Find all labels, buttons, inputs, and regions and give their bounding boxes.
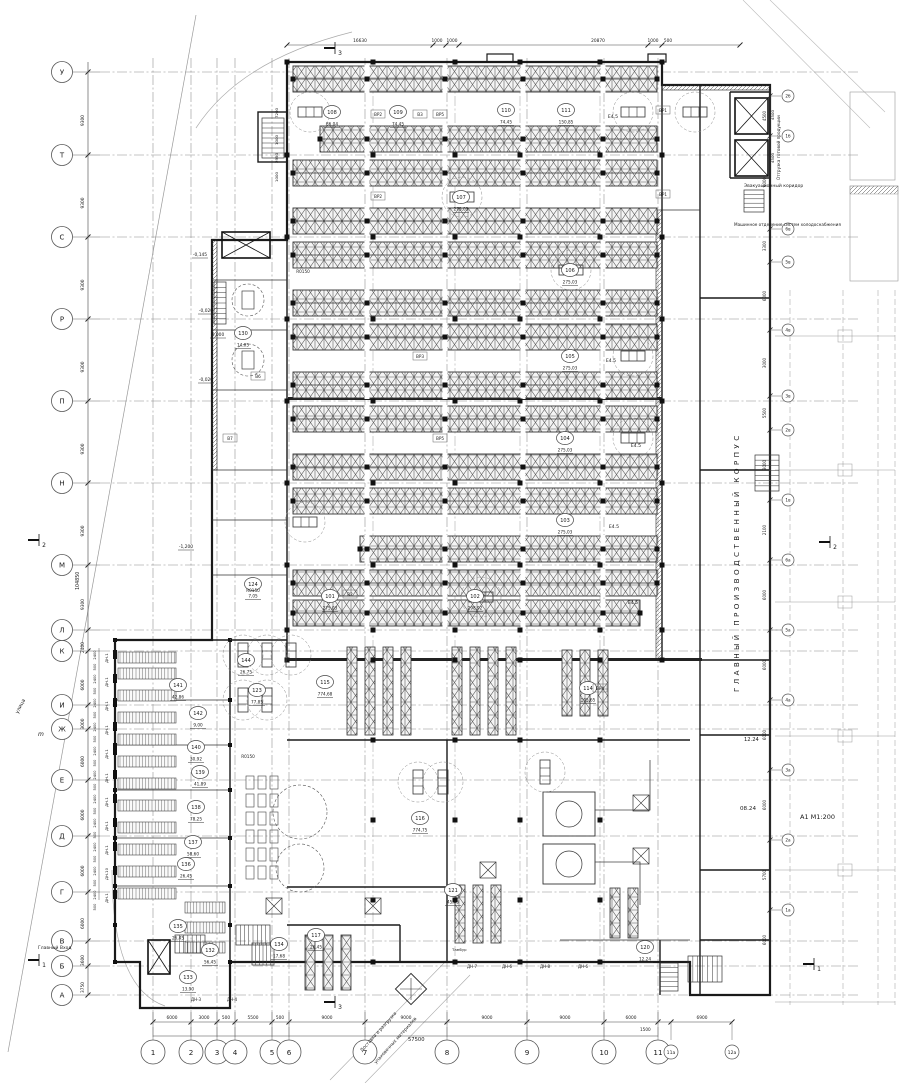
column-marker [598, 60, 603, 65]
dim-value: 5500 [248, 1015, 259, 1021]
grid-row-label: У [60, 69, 65, 77]
dock-label: ДН-10 [104, 867, 109, 880]
dock-label: ДН-1 [104, 677, 109, 687]
dim-value: 6000 [626, 1015, 637, 1021]
room-number: 108 [327, 110, 337, 116]
column-marker [521, 219, 526, 224]
column-marker [601, 137, 606, 142]
column-marker [365, 301, 370, 306]
dim-value: 2400 [93, 842, 97, 852]
room-area: 275,03 [558, 530, 573, 535]
column-marker [365, 581, 370, 586]
shelf-row [118, 712, 176, 723]
column-marker [638, 611, 643, 616]
plan-line [271, 635, 311, 675]
room-number: 144 [241, 658, 251, 664]
column-marker [453, 60, 458, 65]
room-number: 123 [252, 688, 262, 694]
room-area: 7,05 [248, 594, 258, 599]
column-marker [228, 788, 232, 792]
shelf-row [118, 652, 176, 663]
column-marker [518, 658, 523, 663]
column-marker [601, 77, 606, 82]
process-tank [543, 844, 595, 884]
column-marker [371, 153, 376, 158]
dock-label: ДН-1 [104, 893, 109, 903]
room-area: 78,25 [190, 817, 202, 822]
dim-value: 500 [93, 903, 97, 911]
column-marker [113, 836, 117, 840]
column-marker [228, 743, 232, 747]
grid-row-label: М [59, 562, 65, 570]
dock-door [113, 866, 117, 875]
load-class-mark: Е4.5 [631, 443, 641, 449]
dim-value: 9300 [80, 599, 86, 610]
grid-col-label: 10 [599, 1048, 609, 1057]
room-area: 26,45 [172, 936, 184, 941]
dim-value: 6000 [167, 1015, 178, 1021]
room-area: 12,24 [639, 957, 651, 962]
column-marker [365, 611, 370, 616]
dock-door [113, 890, 117, 899]
load-class-mark: Е4.5 [609, 524, 619, 530]
main-entrance-label: Главный Вход [38, 944, 72, 951]
dim-value: 500 [93, 807, 97, 815]
column-marker [365, 465, 370, 470]
column-marker [371, 60, 376, 65]
grid-col-label: 2 [189, 1048, 194, 1057]
dim-value: 2400 [93, 770, 97, 780]
column-marker [371, 628, 376, 633]
column-marker [598, 317, 603, 322]
column-marker [521, 383, 526, 388]
grid-row-label: И [59, 702, 64, 710]
misc-labels: ВР2В3ВР5ВР1ВР1ВР2ВР3ВР5В2ВР4В6В7Е4.5Е4.5… [28, 42, 837, 1011]
room-area: 774,68 [318, 692, 333, 697]
column-marker [598, 898, 603, 903]
sub-width-dim: 1500 [640, 1027, 651, 1032]
column-marker [521, 417, 526, 422]
rack-column [323, 935, 333, 990]
main-building-title: ГЛАВНЫЙ ПРОИЗВОДСТВЕННЫЙ КОРПУС [732, 432, 741, 692]
rack-code: ВР2 [374, 194, 382, 199]
rack-column [506, 647, 516, 735]
column-marker [655, 301, 660, 306]
column-marker [521, 77, 526, 82]
stair-flight [688, 956, 722, 982]
column-marker [598, 399, 603, 404]
dim-value: 2400 [80, 642, 86, 653]
dock-door [113, 698, 117, 707]
date-note-top: 12.24 [744, 737, 760, 743]
dim-value: 2400 [93, 698, 97, 708]
stair-flight [744, 190, 764, 212]
pump-unit [270, 848, 278, 861]
column-marker [443, 611, 448, 616]
column-marker [443, 301, 448, 306]
column-marker [598, 658, 603, 663]
dim-value: 500 [93, 687, 97, 695]
column-marker [443, 335, 448, 340]
forklift-icon [247, 635, 287, 675]
column-marker [598, 960, 603, 965]
dim-value: 9000 [482, 1015, 493, 1021]
plan-line [621, 107, 645, 117]
dock-door [113, 770, 117, 779]
date-note-mid: 08.24 [740, 806, 756, 812]
shelf-row [185, 922, 225, 933]
column-marker [655, 547, 660, 552]
dock-label: ДН-4 [227, 997, 238, 1002]
column-marker [655, 465, 660, 470]
column-marker [443, 77, 448, 82]
column-marker [521, 499, 526, 504]
dock-label: ДН-1 [104, 653, 109, 663]
dim-value: 1000 [648, 38, 659, 44]
room-area: 9,00 [193, 723, 203, 728]
room-area: 105,65 [581, 698, 596, 703]
room-number: 103 [560, 518, 570, 524]
tambour-label: Тамбур [451, 947, 467, 952]
dim-value: 4500 [770, 110, 775, 120]
hoist-unit [242, 351, 254, 369]
grid-row-label: В [60, 938, 65, 946]
column-marker [601, 499, 606, 504]
street-label: улица [14, 698, 27, 715]
pump-unit [246, 776, 254, 789]
dim-value: 1000 [274, 172, 279, 182]
shipping-label: Отгрузка готовой продукции [776, 115, 781, 180]
room-number: 133 [183, 975, 193, 981]
grid-row-label: Л [59, 627, 64, 635]
grid-row-label: 6а [785, 558, 791, 563]
pump-unit [246, 812, 254, 825]
dim-value: 20870 [591, 38, 605, 44]
plan-line [298, 107, 322, 117]
column-marker [655, 499, 660, 504]
plan-line [633, 848, 649, 864]
section-number: 3 [338, 50, 342, 57]
column-marker [660, 563, 665, 568]
column-marker [318, 137, 323, 142]
column-marker [443, 137, 448, 142]
grid-row-label: 3а [785, 768, 791, 773]
dim-value: 7200 [274, 108, 279, 118]
column-marker [601, 611, 606, 616]
dim-value: 500 [93, 759, 97, 767]
column-marker [601, 171, 606, 176]
column-marker [285, 628, 290, 633]
dim-value: 9000 [560, 1015, 571, 1021]
plan-line [238, 688, 248, 712]
column-marker [365, 253, 370, 258]
dim-value: 6000 [80, 865, 86, 876]
pump-unit [258, 830, 266, 843]
dim-value: 3750 [80, 982, 86, 993]
column-marker [655, 253, 660, 258]
room-area: 26,45 [180, 874, 192, 879]
room-area: 42,86 [172, 695, 184, 700]
pipe-run [595, 760, 650, 905]
rack-code: В2 [347, 592, 353, 597]
room-area: 150,85 [559, 120, 574, 125]
column-marker [291, 499, 296, 504]
room-number: 109 [393, 110, 403, 116]
load-class-mark: Е4.5 [606, 358, 616, 364]
format-scale-note: А1 М1:200 [800, 813, 835, 821]
column-marker [660, 60, 665, 65]
dock-door [113, 842, 117, 851]
room-number: 105 [565, 354, 575, 360]
shelf-row [185, 902, 225, 913]
plan-line [735, 140, 768, 176]
shelf-row [118, 822, 176, 833]
column-marker [598, 235, 603, 240]
grid-row-label: 3в [785, 394, 791, 399]
column-marker [660, 628, 665, 633]
adjacent-structure [850, 186, 898, 281]
column-marker [371, 818, 376, 823]
column-marker [291, 77, 296, 82]
dim-value: 2400 [93, 722, 97, 732]
column-marker [598, 738, 603, 743]
dock-label: ДН-1 [104, 725, 109, 735]
dock-label: ДН-1 [104, 749, 109, 759]
shelf-row [118, 690, 176, 701]
column-marker [365, 335, 370, 340]
room-area: 26,45 [310, 945, 322, 950]
room-number: 106 [565, 268, 575, 274]
pump-unit [246, 848, 254, 861]
room-number: 111 [561, 108, 571, 114]
grid-col-label: 6 [287, 1048, 292, 1057]
grid-row-label: Ж [58, 726, 66, 734]
column-marker [660, 399, 665, 404]
grid-row-label: Н [59, 480, 64, 488]
column-marker [228, 836, 232, 840]
dock-door [113, 674, 117, 683]
process-tank [543, 792, 595, 836]
grid-row-label: С [60, 234, 65, 242]
column-marker [518, 898, 523, 903]
room-number: 141 [173, 683, 183, 689]
dim-value: 2400 [93, 674, 97, 684]
dock-label: ДН-1 [104, 845, 109, 855]
grid-row-label: Д [59, 833, 65, 841]
section-number: 3 [338, 1004, 342, 1011]
column-marker [285, 481, 290, 486]
dim-value: 1000 [274, 135, 279, 145]
dim-value: 2950 [274, 153, 279, 163]
tank-circle [276, 844, 324, 892]
pump-unit [258, 848, 266, 861]
wall-notch [487, 54, 513, 62]
dim-value: 500 [93, 783, 97, 791]
tank-circle [556, 801, 582, 827]
column-marker [365, 499, 370, 504]
column-marker [228, 884, 232, 888]
column-marker [655, 137, 660, 142]
column-marker [291, 301, 296, 306]
dim-value: 9300 [80, 361, 86, 372]
rack-code: ВР5 [436, 112, 444, 117]
room-area: 275,03 [454, 207, 469, 212]
column-marker [601, 335, 606, 340]
dim-value: 3000 [762, 357, 767, 368]
room-area: 298,92 [468, 606, 483, 611]
column-marker [285, 399, 290, 404]
dock-label: ДН-6 [502, 964, 513, 969]
dim-value: 6000 [80, 756, 86, 767]
rack-code: ВР1 [659, 108, 667, 113]
adjacent-structure [850, 92, 895, 180]
plan-line [755, 455, 779, 491]
dim-value: 3600 [80, 955, 86, 966]
plan-line [621, 433, 645, 443]
plan-line [413, 770, 423, 794]
total-width-dim: 57500 [408, 1037, 425, 1043]
room-number: 137 [188, 840, 198, 846]
dim-value: 9300 [80, 279, 86, 290]
shelf-row [118, 800, 176, 811]
dim-value: 500 [93, 831, 97, 839]
column-marker [371, 960, 376, 965]
hatched-wall [212, 240, 217, 470]
column-marker [365, 171, 370, 176]
rack-code: ВР1 [659, 192, 667, 197]
room-number: 142 [193, 711, 203, 717]
shelf-row [118, 778, 176, 789]
room-area: 56,45 [204, 960, 216, 965]
plan-line [540, 760, 550, 784]
forklift-icon [423, 762, 463, 802]
column-marker [655, 581, 660, 586]
room-number: 102 [470, 594, 480, 600]
grid-row-label: Г [60, 889, 64, 897]
column-marker [598, 153, 603, 158]
column-marker [365, 417, 370, 422]
column-marker [371, 563, 376, 568]
column-marker [518, 738, 523, 743]
hatched-wall [662, 85, 770, 90]
dock-label: ДН-6 [578, 964, 589, 969]
section-marker: 3 [324, 996, 342, 1011]
column-marker [443, 253, 448, 258]
column-marker [453, 628, 458, 633]
dim-value: 6000 [762, 799, 767, 810]
grid-row-label: 4а [785, 698, 791, 703]
pump-unit [270, 866, 278, 879]
grid-row-label: 1б [785, 134, 791, 139]
room-number: 120 [640, 945, 650, 951]
plan-line [398, 762, 438, 802]
tank-circle [556, 851, 582, 877]
dim-value: 3000 [199, 1015, 210, 1021]
room-area: 774,75 [413, 828, 428, 833]
grid-row-label: 6в [785, 227, 791, 232]
column-marker [601, 581, 606, 586]
column-marker [371, 738, 376, 743]
room-area: 77,85 [251, 700, 263, 705]
column-marker [518, 60, 523, 65]
radius-mark: R0150 [246, 588, 260, 593]
room-area: 275,03 [558, 448, 573, 453]
section-number: 2 [833, 544, 837, 551]
column-marker [371, 317, 376, 322]
tank-circle [232, 284, 264, 316]
column-marker [521, 171, 526, 176]
dim-value: 500 [664, 38, 672, 44]
dim-value: 6000 [80, 809, 86, 820]
dock-label: ДН-1 [104, 773, 109, 783]
column-marker [521, 253, 526, 258]
column-marker [598, 628, 603, 633]
dim-value: 6000 [762, 934, 767, 945]
room-area: 275,03 [563, 366, 578, 371]
room-number: 115 [320, 680, 330, 686]
grid-col-label: 11 [653, 1048, 662, 1057]
dock-door [113, 650, 117, 659]
dim-value: 6000 [80, 918, 86, 929]
room-number: 134 [274, 942, 284, 948]
column-marker [453, 738, 458, 743]
grid-row-label: Т [59, 152, 65, 160]
floor-plan-sheet: У9300Т9300С9300Р9300П9300Н9300М9300Л2400… [0, 0, 900, 1083]
dim-value: 2400 [93, 890, 97, 900]
rack-code: ВР5 [436, 436, 444, 441]
dock-label: ДН-3 [191, 997, 202, 1002]
plan-line [683, 107, 707, 117]
total-height-dim: 104850 [75, 572, 81, 590]
rack-column [491, 885, 501, 943]
stair-flight [755, 455, 779, 491]
column-marker [371, 481, 376, 486]
column-marker [291, 335, 296, 340]
dim-value: 6000 [762, 589, 767, 600]
column-marker [660, 235, 665, 240]
column-marker [518, 628, 523, 633]
column-marker [601, 383, 606, 388]
room-number: 114 [583, 686, 593, 692]
floor-plan-drawing: У9300Т9300С9300Р9300П9300Н9300М9300Л2400… [0, 0, 900, 1083]
column-marker [660, 317, 665, 322]
rack-code: ВР2 [374, 112, 382, 117]
grid-row-label: Р [60, 316, 64, 324]
room-area: 58,60 [187, 852, 199, 857]
section-number: 1 [42, 962, 46, 969]
dock-door [113, 746, 117, 755]
column-marker [655, 383, 660, 388]
column-marker [285, 563, 290, 568]
column-marker [601, 547, 606, 552]
room-number: 104 [560, 436, 570, 442]
shelf-row [118, 888, 176, 899]
column-marker [443, 547, 448, 552]
column-marker [453, 317, 458, 322]
grid-row-label: 2в [785, 428, 791, 433]
column-marker [518, 563, 523, 568]
column-marker [365, 219, 370, 224]
grid-row-label: 2б [785, 94, 791, 99]
pump-unit [258, 776, 266, 789]
grid-col-label: 9 [525, 1048, 530, 1057]
dock-door [113, 794, 117, 803]
column-marker [518, 235, 523, 240]
dock-label: ДН-7 [467, 964, 478, 969]
forklift-icon [398, 762, 438, 802]
dim-value: 9000 [322, 1015, 333, 1021]
rack-column [347, 647, 357, 735]
